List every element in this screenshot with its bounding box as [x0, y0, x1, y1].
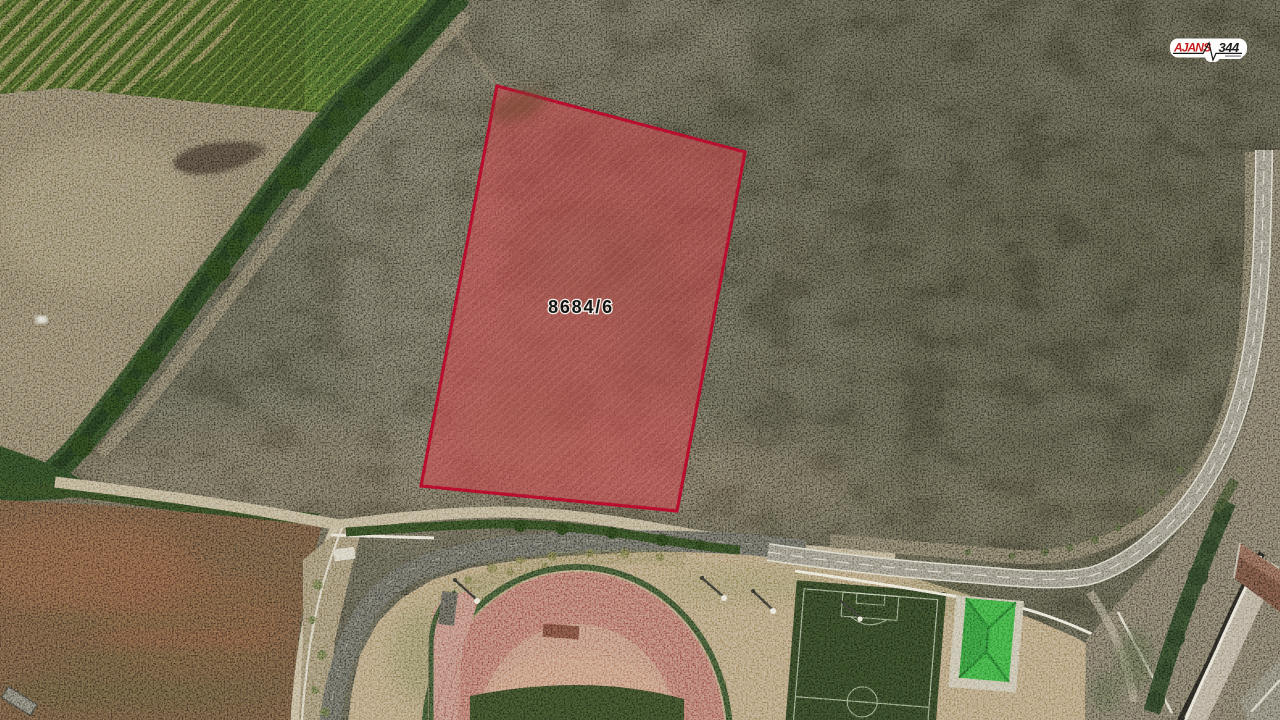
- svg-text:AJANS: AJANS: [1173, 41, 1211, 55]
- svg-text:344: 344: [1219, 40, 1240, 55]
- svg-text:8684/6: 8684/6: [548, 297, 614, 317]
